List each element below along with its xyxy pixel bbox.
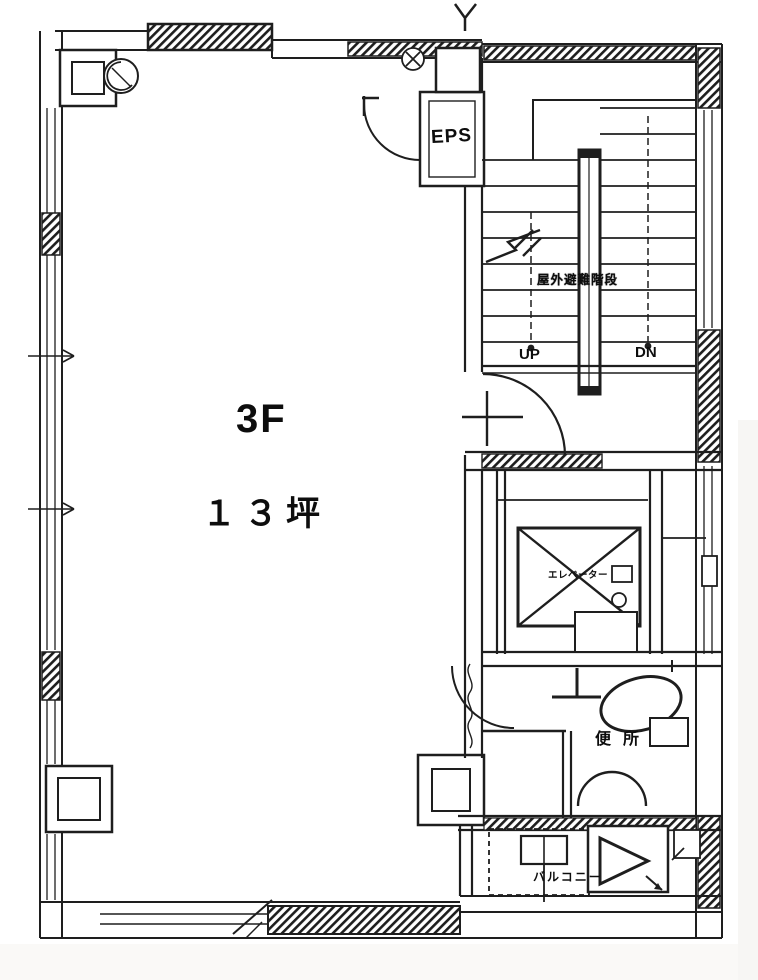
exterior-walls (40, 24, 722, 938)
area-label: １３坪 (202, 497, 328, 531)
balcony (458, 816, 722, 902)
stair-stringer (579, 150, 600, 394)
floor-label: 3F (236, 399, 287, 439)
columns (46, 50, 484, 832)
elevator-label: エレベーター (548, 571, 608, 581)
eps-label: EPS (431, 126, 473, 147)
toilet-label: 便所 (595, 732, 651, 748)
landing-door-arc (462, 374, 565, 456)
stair-break-line (486, 230, 541, 262)
eps-door-arc (362, 96, 420, 160)
elevator-car (518, 528, 640, 652)
floor-plan-canvas: 3F １３坪 EPS 屋外避難階段 UP DN エレベーター 便所 バルコニー (0, 0, 758, 980)
scan-edge-right (738, 420, 758, 980)
fan-symbol (402, 48, 424, 70)
floor-plan-drawing (0, 0, 758, 980)
vent-pipe-icon (455, 4, 476, 31)
window-glazing (28, 108, 712, 900)
stair-note-label: 屋外避難階段 (537, 274, 618, 287)
sink-symbol (552, 668, 601, 697)
toilet-room (452, 660, 688, 820)
duct-shaft (436, 48, 480, 92)
stair-up-label: UP (519, 347, 540, 362)
toilet-door-arc (578, 772, 646, 806)
stair-down-label: DN (635, 345, 657, 360)
pipe-squiggle (468, 664, 472, 748)
balcony-corner-panel (672, 830, 700, 860)
scan-edge-bottom (0, 944, 758, 980)
balcony-label: バルコニー (533, 871, 603, 883)
pipe-symbol (104, 59, 138, 93)
staircase (482, 100, 696, 394)
